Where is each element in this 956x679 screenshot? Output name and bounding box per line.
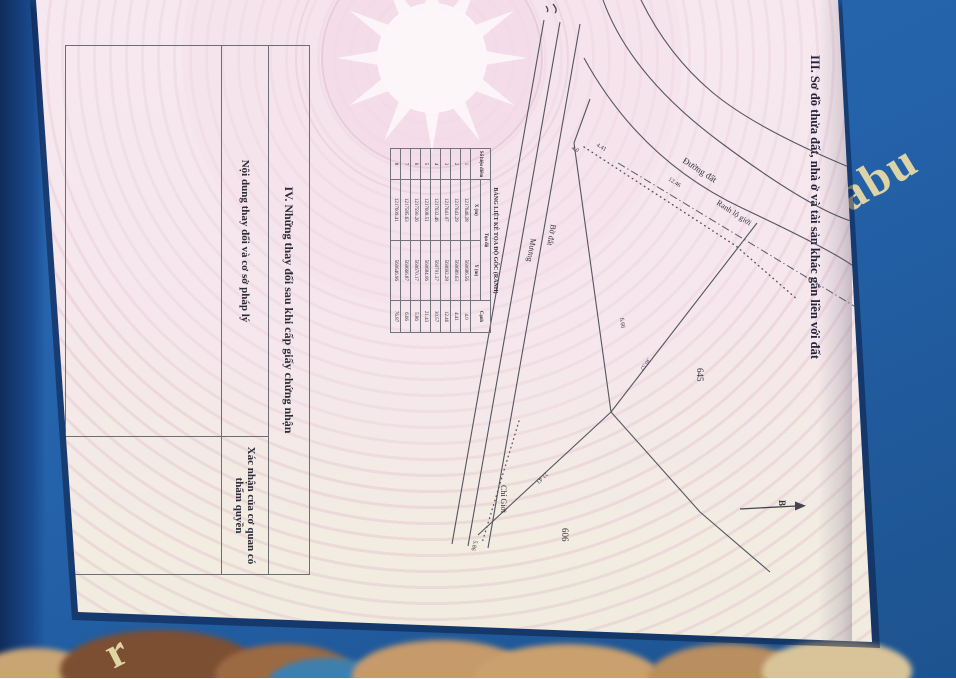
- table-row: 6 1217590.26 560670.17 5.86: [411, 149, 421, 333]
- parcel-645-label: 645: [695, 368, 705, 382]
- table-row: 8 1217609.41 560646.96 76.87: [391, 149, 401, 333]
- north-label: B: [777, 500, 787, 506]
- parcel-edge: [574, 143, 611, 412]
- cell-point: 5: [421, 149, 431, 180]
- section-iv-title: IV. Những thay đổi sau khi cấp giấy chứn…: [268, 46, 309, 574]
- cell-edge: 30.57: [431, 301, 441, 333]
- cell-x: 1217641.07: [441, 180, 451, 241]
- land-bank-label: Bờ đất: [545, 224, 558, 247]
- table-row: 7 1217585.63 560666.87 6.66: [401, 149, 411, 333]
- cell-x: 1217643.29: [451, 180, 461, 241]
- measurement-label: 4.0: [570, 145, 579, 154]
- boundary-marker-label: Chỉ Giới: [499, 485, 508, 514]
- boundary-dotted-line: [482, 421, 519, 543]
- measurement-label: 21.43: [535, 471, 549, 485]
- col-header-x: X (m): [471, 180, 481, 241]
- section-iv-col-confirm-header: Xác nhận của cơ quan có thẩm quyền: [222, 437, 268, 574]
- table-row: 4 1217632.46 560701.37 30.57: [431, 149, 441, 333]
- ditch-label: Mương: [525, 238, 538, 263]
- cell-y: 560701.37: [431, 240, 441, 301]
- cell-x: 1217632.46: [431, 180, 441, 241]
- section-iv-col-content-header: Nội dung thay đổi và cơ sở pháp lý: [222, 46, 268, 437]
- pen-mark: [546, 4, 556, 13]
- cell-y: 560670.17: [411, 240, 421, 301]
- cell-point: 4: [431, 149, 441, 180]
- cell-point: 2: [451, 149, 461, 180]
- cell-edge: 21.43: [421, 301, 431, 333]
- table-row: 2 1217643.29 560689.63 4.41: [451, 149, 461, 333]
- road-line: [584, 58, 858, 270]
- col-header-point: Số hiệu điểm: [471, 149, 491, 180]
- road-line: [603, 0, 854, 222]
- coordinate-table: BẢNG LIỆT KÊ TỌA ĐỘ GỐC (RANH) Số hiệu đ…: [383, 148, 500, 333]
- section-iv-content-cell: [66, 46, 221, 437]
- measurement-label: 4.41: [595, 143, 607, 153]
- document-page: III. Sơ đồ thửa đất, nhà ở và tài sản kh…: [0, 0, 956, 678]
- measurement-label: 30.57: [638, 357, 651, 371]
- cell-y: 560692.28: [441, 240, 451, 301]
- parcel-edge: [611, 223, 757, 412]
- cell-edge: 76.87: [391, 301, 401, 333]
- cell-edge: 4.41: [451, 301, 461, 333]
- parcel-edge: [611, 412, 770, 572]
- cell-point: 1: [461, 149, 471, 180]
- cell-point: 6: [411, 149, 421, 180]
- road-boundary-label: Ranh lộ giới: [715, 198, 754, 228]
- cell-edge: 4.0: [461, 301, 471, 333]
- north-arrow: [740, 502, 806, 511]
- cell-edge: 5.86: [411, 301, 421, 333]
- table-row: 3 1217641.07 560692.28 12.46: [441, 149, 451, 333]
- section-iv-table: IV. Những thay đổi sau khi cấp giấy chứn…: [65, 45, 310, 575]
- measurement-label: 6.66: [618, 317, 625, 328]
- cell-x: 1217608.51: [421, 180, 431, 241]
- road-line: [641, 0, 856, 170]
- section-iv-confirm-cell: [66, 437, 221, 574]
- col-header-y: Y (m): [471, 240, 481, 301]
- col-header-coords: Tọa độ: [481, 180, 491, 301]
- cell-x: 1217590.26: [411, 180, 421, 241]
- cell-x: 1217585.63: [401, 180, 411, 241]
- parcel-606-label: 606: [560, 528, 570, 542]
- road-label: Đường đất: [681, 155, 719, 185]
- cell-y: 560666.87: [401, 240, 411, 301]
- col-header-edge: Cạnh: [471, 301, 491, 333]
- land-bank-line: [488, 24, 580, 548]
- cell-y: 560646.96: [391, 240, 401, 301]
- measurement-label: 12.46: [667, 177, 682, 189]
- cell-point: 8: [391, 149, 401, 180]
- cell-x: 1217646.28: [461, 180, 471, 241]
- table-row: 5 1217608.51 560684.06 21.43: [421, 149, 431, 333]
- table-row: 1 1217646.28 560686.56 4.0: [461, 149, 471, 333]
- coordinate-table-title: BẢNG LIỆT KÊ TỌA ĐỘ GỐC (RANH): [491, 148, 500, 333]
- cell-point: 7: [401, 149, 411, 180]
- cell-x: 1217609.41: [391, 180, 401, 241]
- cell-y: 560686.56: [461, 240, 471, 301]
- parcel-edge: [574, 99, 590, 143]
- cell-edge: 12.46: [441, 301, 451, 333]
- cell-y: 560684.06: [421, 240, 431, 301]
- corridor-dashdot-line: [618, 163, 864, 312]
- cell-edge: 6.66: [401, 301, 411, 333]
- cell-point: 3: [441, 149, 451, 180]
- measurement-label: 5.86: [469, 539, 478, 551]
- cell-y: 560689.63: [451, 240, 461, 301]
